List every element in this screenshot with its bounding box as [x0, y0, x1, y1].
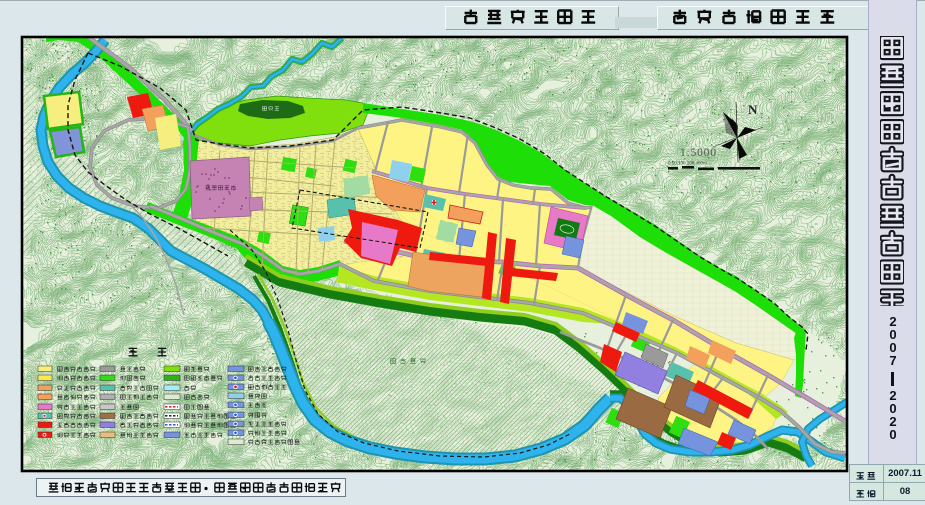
- svg-text:1:5000: 1:5000: [680, 147, 717, 159]
- svg-text:0 50 100 200 400m: 0 50 100 200 400m: [668, 162, 707, 167]
- svg-text:N: N: [748, 102, 758, 117]
